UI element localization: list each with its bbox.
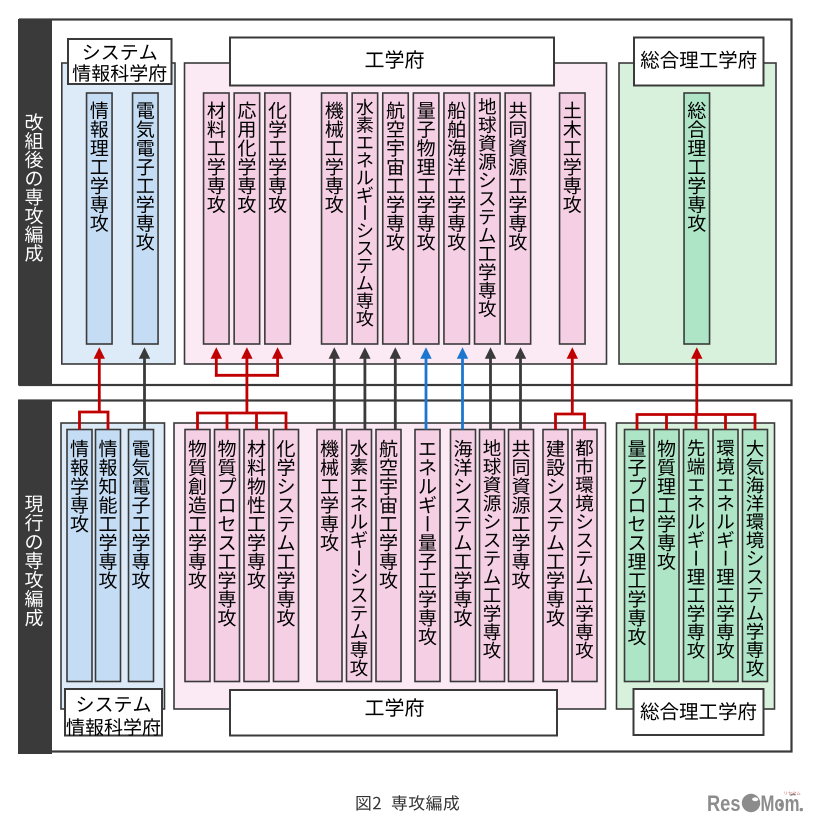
svg-text:Res: Res	[707, 791, 741, 816]
